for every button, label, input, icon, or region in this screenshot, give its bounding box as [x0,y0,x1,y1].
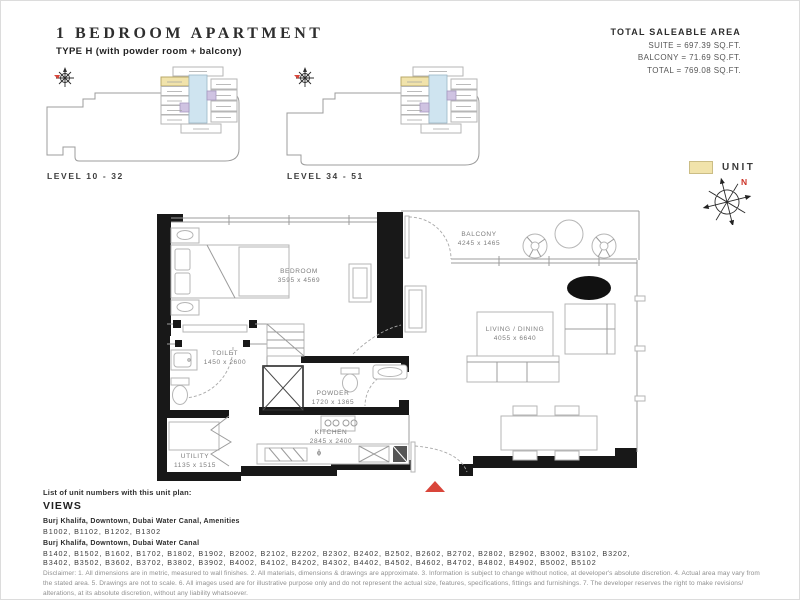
room-utility: UTILITY 1135 x 1515 [169,416,231,469]
shaft [263,366,303,410]
compass-rose-icon: N [683,173,773,225]
rug [477,312,553,356]
key-plan-level-10-32: LEVEL 10 - 32 [41,61,261,179]
saleable-area-heading: TOTAL SALEABLE AREA [611,27,741,37]
room-powder: POWDER 1720 x 1365 [312,365,407,406]
compass-rose-icon [294,67,314,87]
saleable-area-block: TOTAL SALEABLE AREA SUITE = 697.39 SQ.FT… [611,27,741,77]
wc [171,378,189,385]
room-label-toilet: TOILET [212,350,238,357]
room-dims-powder: 1720 x 1365 [312,399,354,406]
key-plan-drawing [41,61,261,169]
unit-legend-label: UNIT [722,162,755,173]
unit-grid [161,67,237,133]
entrance-marker-icon [425,481,445,492]
highlighted-unit-cell [161,77,189,86]
view-group-2-units: B1402, B1502, B1602, B1702, B1802, B1902… [43,549,767,567]
room-dims-toilet: 1450 x 2600 [204,359,246,366]
room-label-bedroom: BEDROOM [280,268,318,275]
room-dims-bedroom: 3595 x 4569 [278,277,320,284]
balcony-chair [523,234,547,258]
room-dims-balcony: 4245 x 1465 [458,240,500,247]
storage [169,422,219,450]
saleable-area-balcony: BALCONY = 71.69 SQ.FT. [611,52,741,64]
closet [267,324,304,356]
room-label-balcony: BALCONY [461,231,496,238]
sofa [467,356,559,382]
units-line-1: B1402, B1502, B1602, B1702, B1802, B1902… [43,549,767,558]
room-toilet: TOILET 1450 x 2600 [171,350,246,405]
view-group-2-title: Burj Khalifa, Downtown, Dubai Water Cana… [43,540,199,547]
room-label-powder: POWDER [317,390,350,397]
room-dims-utility: 1135 x 1515 [174,462,216,469]
view-group-1-title: Burj Khalifa, Downtown, Dubai Water Cana… [43,518,240,525]
room-label-utility: UTILITY [181,453,209,460]
compass-rose-icon [54,67,74,87]
room-kitchen: KITCHEN 2845 x 2400 [257,416,409,464]
unit-list-intro: List of unit numbers with this unit plan… [43,488,192,497]
units-line-2: B3402, B3502, B3602, B3702, B3802, B3902… [43,558,767,567]
room-dims-living: 4055 x 6640 [494,335,536,342]
room-balcony: BALCONY 4245 x 1465 [458,220,616,258]
north-label: N [741,177,747,187]
views-heading: VIEWS [43,500,82,512]
saleable-area-total: TOTAL = 769.08 SQ.FT. [611,65,741,77]
brochure-page: 1 BEDROOM APARTMENT TYPE H (with powder … [0,0,800,600]
floor-plan: BEDROOM 3595 x 4569 BALCONY 4245 x 1465 [149,204,664,496]
view-group-1-units: B1002, B1102, B1202, B1302 [43,527,161,536]
room-label-living: LIVING / DINING [486,326,544,333]
key-plan-label: LEVEL 34 - 51 [287,171,364,181]
room-living-dining: LIVING / DINING 4055 x 6640 [467,276,615,460]
key-plan-level-34-51: LEVEL 34 - 51 [281,61,501,179]
balcony-chair [592,234,616,258]
page-subtitle: TYPE H (with powder room + balcony) [56,46,242,57]
saleable-area-suite: SUITE = 697.39 SQ.FT. [611,40,741,52]
page-title: 1 BEDROOM APARTMENT [56,25,323,43]
room-label-kitchen: KITCHEN [315,429,348,436]
disclaimer: Disclaimer: 1. All dimensions are in met… [43,569,761,598]
wc [341,368,359,374]
room-dims-kitchen: 2845 x 2400 [310,438,352,445]
key-plan-label: LEVEL 10 - 32 [47,171,124,181]
round-table [567,276,611,300]
highlighted-unit-cell [401,77,429,86]
balcony-table [555,220,583,248]
key-plan-drawing [281,61,501,169]
dining-table [501,416,597,450]
unit-grid [401,67,477,133]
